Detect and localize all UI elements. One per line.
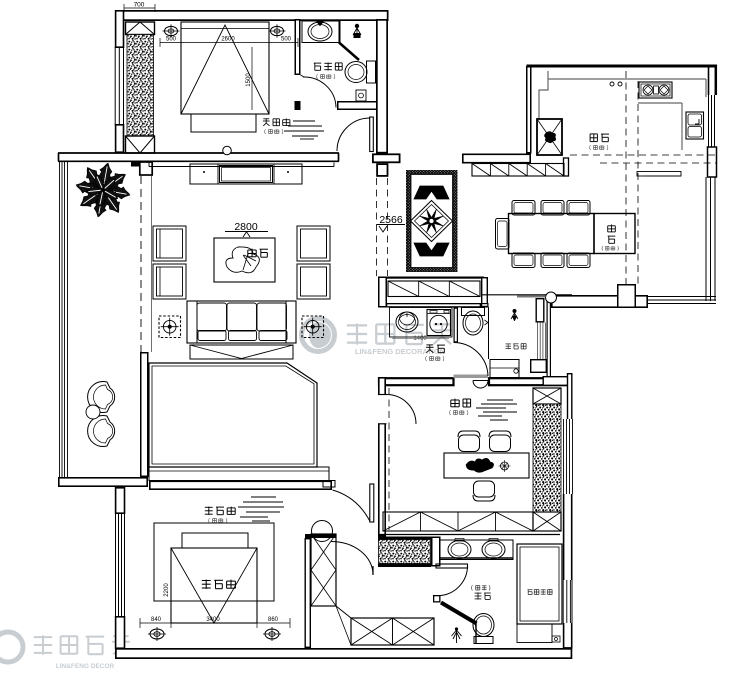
svg-text:700: 700 (134, 2, 145, 9)
svg-text:1460: 1460 (413, 336, 427, 342)
svg-text:500: 500 (281, 37, 292, 43)
svg-text:3400: 3400 (206, 617, 220, 623)
svg-text:860: 860 (268, 617, 279, 623)
svg-text:840: 840 (151, 617, 162, 623)
svg-text:1500: 1500 (246, 73, 252, 87)
svg-text:2200: 2200 (164, 583, 170, 597)
svg-text:LIN&FENG DECOR: LIN&FENG DECOR (56, 663, 115, 670)
svg-text:2600: 2600 (221, 37, 235, 43)
